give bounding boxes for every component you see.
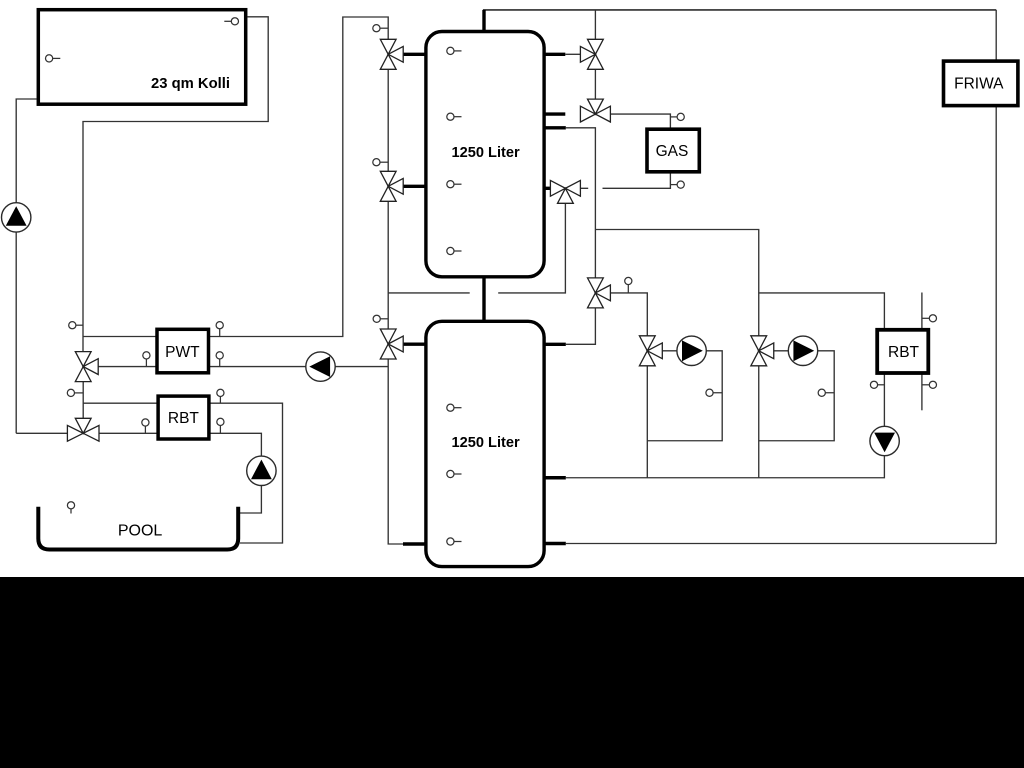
svg-text:1250 Liter: 1250 Liter — [452, 435, 520, 451]
svg-text:1250 Liter: 1250 Liter — [452, 145, 520, 161]
svg-text:RBT: RBT — [888, 344, 920, 361]
svg-text:PWT: PWT — [165, 344, 200, 361]
svg-text:RBT: RBT — [168, 410, 200, 427]
svg-text:POOL: POOL — [118, 522, 163, 539]
svg-text:FRIWA: FRIWA — [954, 76, 1004, 93]
svg-text:GAS: GAS — [656, 143, 689, 160]
svg-text:23 qm Kolli: 23 qm Kolli — [151, 76, 230, 92]
